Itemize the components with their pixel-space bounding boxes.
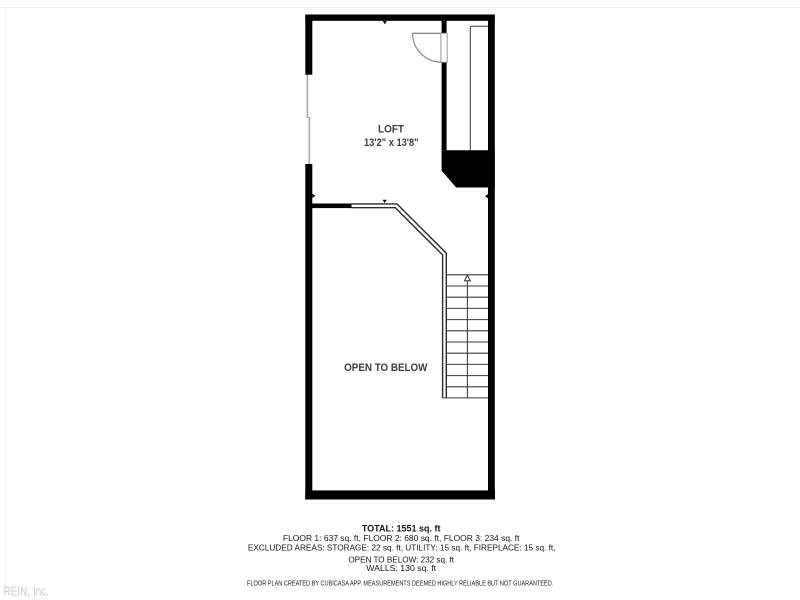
svg-text:13'2" x 13'8": 13'2" x 13'8"	[364, 137, 419, 149]
svg-text:WALLS: 130 sq. ft: WALLS: 130 sq. ft	[366, 563, 436, 573]
svg-text:FLOOR 1: 637 sq. ft, FLOOR 2:: FLOOR 1: 637 sq. ft, FLOOR 2: 680 sq. ft…	[283, 533, 520, 543]
svg-text:EXCLUDED AREAS: STORAGE: 22 sq: EXCLUDED AREAS: STORAGE: 22 sq. ft, UTIL…	[248, 543, 556, 553]
svg-text:REIN, Inc.: REIN, Inc.	[4, 585, 50, 599]
svg-text:OPEN TO BELOW: OPEN TO BELOW	[344, 362, 428, 374]
svg-text:FLOOR PLAN CREATED BY CUBICASA: FLOOR PLAN CREATED BY CUBICASA APP. MEAS…	[247, 581, 553, 588]
svg-text:LOFT: LOFT	[378, 124, 404, 136]
svg-text:TOTAL: 1551 sq. ft: TOTAL: 1551 sq. ft	[362, 523, 441, 533]
